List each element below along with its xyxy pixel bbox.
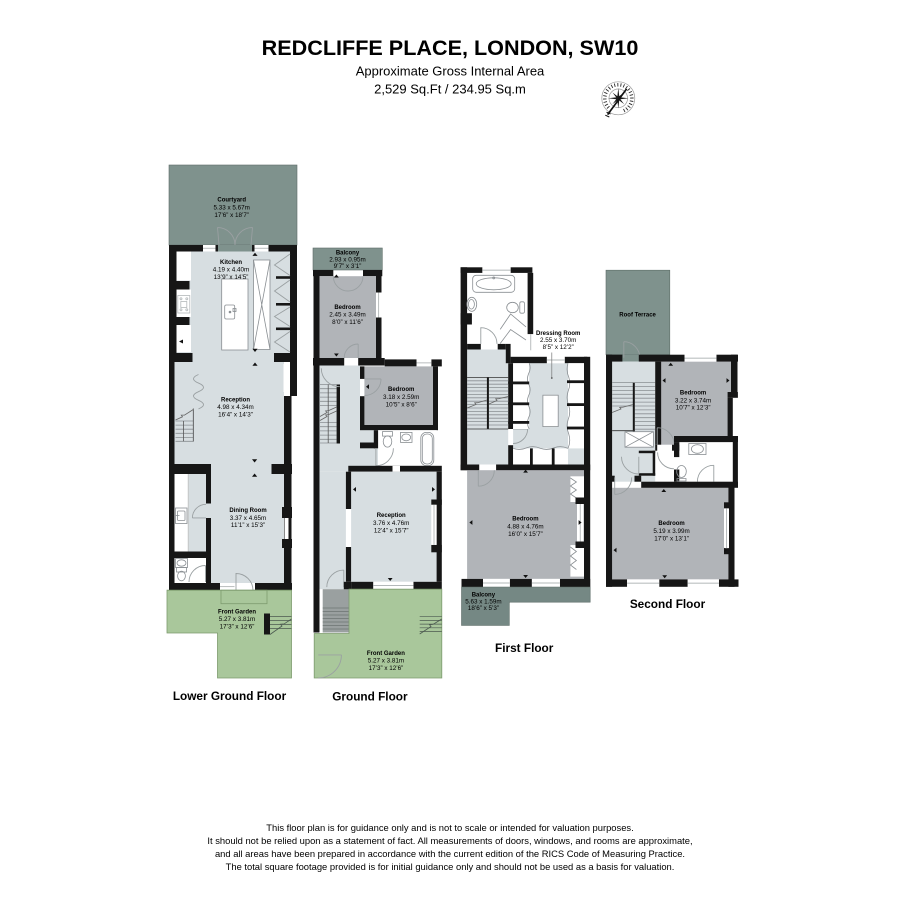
svg-text:First Floor: First Floor xyxy=(495,641,554,655)
svg-text:5.27 x 3.81m: 5.27 x 3.81m xyxy=(368,658,404,665)
svg-text:17’3” x 12’6”: 17’3” x 12’6” xyxy=(369,665,404,672)
svg-text:10’7” x 12’3”: 10’7” x 12’3” xyxy=(676,405,711,412)
svg-text:Courtyard: Courtyard xyxy=(217,197,246,203)
svg-text:Front Garden: Front Garden xyxy=(218,609,256,615)
svg-text:5.19 x 3.99m: 5.19 x 3.99m xyxy=(653,528,689,535)
svg-text:18’6” x 5’3”: 18’6” x 5’3” xyxy=(468,605,499,612)
svg-text:Bedroom: Bedroom xyxy=(680,391,706,397)
svg-text:Front Garden: Front Garden xyxy=(367,651,405,657)
svg-text:Lower Ground Floor: Lower Ground Floor xyxy=(173,689,287,703)
svg-text:8’5” x 12’2”: 8’5” x 12’2” xyxy=(543,344,574,351)
svg-text:Bedroom: Bedroom xyxy=(388,387,414,393)
svg-text:REDCLIFFE PLACE, LONDON, SW10: REDCLIFFE PLACE, LONDON, SW10 xyxy=(262,35,639,60)
svg-text:Reception: Reception xyxy=(221,397,250,403)
svg-text:9’7” x 3’1”: 9’7” x 3’1” xyxy=(334,263,362,270)
svg-text:Roof Terrace: Roof Terrace xyxy=(619,313,656,319)
svg-text:16’0” x 15’7”: 16’0” x 15’7” xyxy=(508,531,543,538)
svg-text:Dressing Room: Dressing Room xyxy=(536,331,580,337)
svg-text:13’9” x 14’5”: 13’9” x 14’5” xyxy=(214,274,249,281)
svg-text:3.37 x 4.65m: 3.37 x 4.65m xyxy=(230,515,266,522)
svg-text:2.55 x 3.70m: 2.55 x 3.70m xyxy=(540,337,576,344)
svg-text:This floor plan is for guidanc: This floor plan is for guidance only and… xyxy=(266,822,633,833)
svg-text:Second Floor: Second Floor xyxy=(630,597,706,611)
svg-text:Bedroom: Bedroom xyxy=(658,521,684,527)
svg-text:5.33 x 5.67m: 5.33 x 5.67m xyxy=(213,204,249,211)
svg-text:Ground Floor: Ground Floor xyxy=(332,690,408,704)
svg-text:11’1” x 15’3”: 11’1” x 15’3” xyxy=(231,522,265,529)
svg-text:4.88 x 4.76m: 4.88 x 4.76m xyxy=(507,524,543,531)
svg-text:2.45 x 3.49m: 2.45 x 3.49m xyxy=(329,312,365,319)
svg-text:Bedroom: Bedroom xyxy=(334,305,360,311)
svg-text:Bedroom: Bedroom xyxy=(512,517,538,523)
svg-text:The total square footage provi: The total square footage provided is for… xyxy=(226,861,675,872)
svg-text:3.18 x 2.59m: 3.18 x 2.59m xyxy=(383,394,419,401)
svg-text:8’0” x 11’6”: 8’0” x 11’6” xyxy=(332,319,363,326)
svg-text:and all areas have been prepar: and all areas have been prepared in acco… xyxy=(215,848,685,859)
svg-text:17’6” x 18’7”: 17’6” x 18’7” xyxy=(214,212,249,219)
svg-text:Reception: Reception xyxy=(377,513,406,519)
svg-text:5.27 x 3.81m: 5.27 x 3.81m xyxy=(219,616,255,623)
svg-text:16’4” x 14’3”: 16’4” x 14’3” xyxy=(218,412,253,419)
svg-text:3.76 x 4.76m: 3.76 x 4.76m xyxy=(373,520,409,527)
svg-text:It should not be relied upon a: It should not be relied upon as a statem… xyxy=(207,835,692,846)
svg-text:4.19 x 4.40m: 4.19 x 4.40m xyxy=(213,267,249,274)
svg-text:Dining Room: Dining Room xyxy=(229,508,266,514)
svg-text:17’0” x 13’1”: 17’0” x 13’1” xyxy=(654,535,689,542)
svg-text:10’5” x 8’6”: 10’5” x 8’6” xyxy=(386,401,417,408)
svg-text:Kitchen: Kitchen xyxy=(220,260,242,266)
svg-text:4.98 x 4.34m: 4.98 x 4.34m xyxy=(217,404,253,411)
svg-text:3.22 x 3.74m: 3.22 x 3.74m xyxy=(675,397,711,404)
svg-text:12’4” x 15’7”: 12’4” x 15’7” xyxy=(374,527,409,534)
svg-text:Approximate Gross Internal Are: Approximate Gross Internal Area xyxy=(356,64,545,79)
svg-text:2,529 Sq.Ft / 234.95 Sq.m: 2,529 Sq.Ft / 234.95 Sq.m xyxy=(374,82,526,97)
svg-text:17’3” x 12’6”: 17’3” x 12’6” xyxy=(220,623,255,630)
